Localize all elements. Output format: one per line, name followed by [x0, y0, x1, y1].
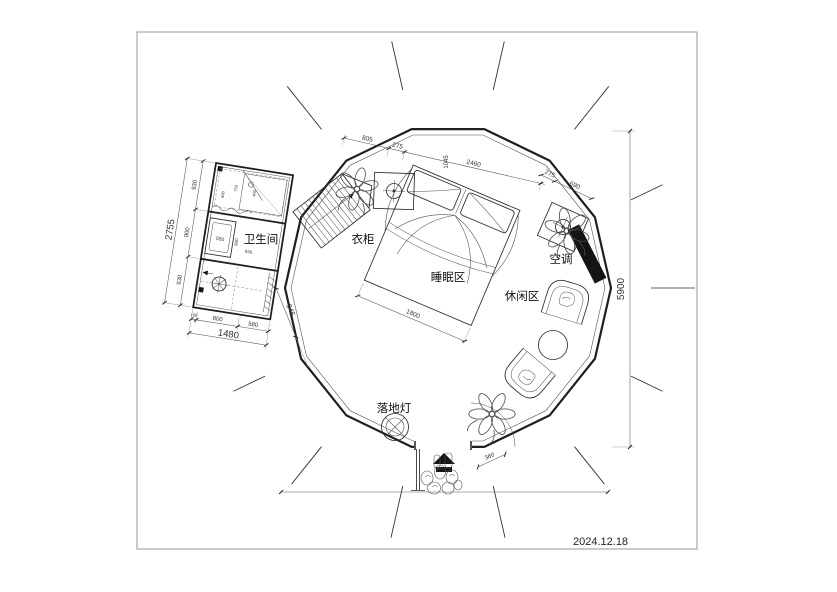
dim-annex-inner-400: 400: [251, 189, 257, 197]
svg-text:2755: 2755: [163, 218, 177, 241]
svg-text:945: 945: [284, 303, 297, 318]
door-dim: 360: [473, 447, 508, 470]
svg-text:360: 360: [484, 452, 496, 462]
label-sleeping-area: 睡眠区: [431, 271, 466, 284]
svg-text:275: 275: [543, 169, 556, 180]
bathroom-annex: 800 750 400 550 900 930 930 900 930 2755…: [149, 155, 295, 350]
svg-text:2460: 2460: [466, 159, 482, 169]
floor-drain-icon: [209, 274, 230, 295]
tent-wall: [285, 129, 611, 447]
dim-1045: 1045: [444, 155, 450, 169]
svg-text:5900: 5900: [616, 277, 627, 300]
floor-plan-canvas: 2024.12.18: [0, 0, 837, 592]
label-floor-lamp: 落地灯: [377, 402, 412, 415]
armchair: [499, 348, 555, 403]
armchair: [541, 277, 592, 325]
label-leisure-area: 休闲区: [505, 289, 540, 303]
label-wardrobe: 衣柜: [352, 232, 375, 246]
plant-icon: [459, 383, 523, 449]
door-jamb: [411, 449, 425, 491]
dim-annex-inner-900: 900: [233, 238, 239, 247]
svg-text:900: 900: [184, 226, 192, 237]
bottom-baseline: [279, 490, 610, 494]
svg-text:1480: 1480: [217, 327, 240, 341]
wall-column: [198, 287, 204, 293]
dim-sink-550: 550: [215, 236, 224, 243]
bed: 1800: [350, 162, 526, 346]
side-table: [539, 331, 568, 360]
dim-annex-inner-800: 800: [220, 190, 226, 198]
bed-width-dim: 1800: [355, 282, 472, 345]
blanket: [384, 222, 495, 278]
label-air-conditioner: 空调: [550, 252, 573, 266]
svg-text:1800: 1800: [405, 308, 421, 320]
svg-text:930: 930: [192, 179, 200, 190]
drawing-date: 2024.12.18: [573, 536, 628, 548]
dim-annex-inner-750: 750: [233, 184, 239, 192]
dim-annex-inner-930: 930: [244, 249, 253, 255]
annex-right-dim: 945: [273, 282, 317, 367]
svg-text:690: 690: [568, 180, 581, 191]
floor-lamp-icon: [382, 414, 409, 441]
svg-text:930: 930: [177, 274, 185, 285]
label-bathroom: 卫生间: [244, 232, 279, 246]
height-dim: 5900: [612, 129, 634, 449]
pillow: [460, 192, 515, 234]
entrance: 360: [411, 403, 515, 494]
nightstand-lamp-icon: [373, 172, 414, 209]
drawing-sheet: 2024.12.18: [0, 0, 837, 592]
air-conditioner: [568, 224, 607, 283]
annex-bottom-dims: 100 800 580 1480: [186, 309, 271, 349]
